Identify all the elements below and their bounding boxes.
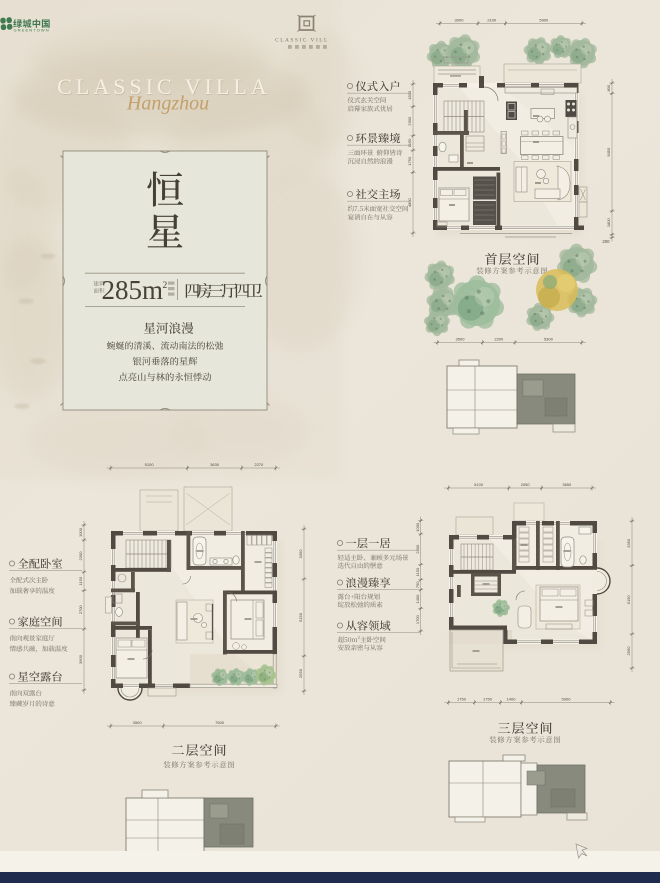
svg-text:CLASSIC VILL: CLASSIC VILL [275,38,329,44]
svg-text:2300: 2300 [415,544,420,554]
svg-text:3500: 3500 [456,337,466,342]
svg-text:3350: 3350 [626,538,631,548]
svg-text:3900: 3900 [78,654,83,664]
svg-text:1400: 1400 [415,594,420,604]
svg-text:4800: 4800 [407,197,412,207]
svg-text:5900: 5900 [539,18,549,23]
svg-text:1000: 1000 [415,522,420,532]
svg-text:1700: 1700 [415,614,420,624]
svg-text:5300: 5300 [544,337,554,342]
svg-text:285m: 285m [102,275,164,305]
svg-text:5150: 5150 [626,595,631,605]
svg-text:2550: 2550 [298,668,303,678]
svg-text:5900: 5900 [562,697,572,702]
svg-text:2050: 2050 [521,482,531,487]
svg-text:2550: 2550 [626,646,631,656]
svg-text:3500: 3500 [133,720,143,725]
svg-text:1750: 1750 [483,697,493,702]
svg-text:1750: 1750 [457,697,467,702]
svg-text:9050: 9050 [606,147,611,157]
svg-text:Hangzhou: Hangzhou [126,93,209,115]
svg-text:1800: 1800 [606,217,611,227]
svg-text:1800: 1800 [407,90,412,100]
svg-text:1150: 1150 [407,138,412,147]
svg-text:7500: 7500 [215,720,225,725]
svg-text:1150: 1150 [78,576,83,585]
svg-text:2300: 2300 [407,116,412,126]
svg-text:3650: 3650 [562,482,572,487]
svg-text:GREENTOWN: GREENTOWN [14,28,50,33]
svg-text:5150: 5150 [298,612,303,622]
svg-text:2300: 2300 [78,551,83,561]
svg-text:3000: 3000 [455,18,465,23]
svg-text:1400: 1400 [507,697,517,702]
svg-text:1750: 1750 [407,156,412,166]
svg-text:800: 800 [606,84,611,91]
svg-text:2200: 2200 [494,337,504,342]
svg-text:5100: 5100 [145,462,155,467]
svg-text:2700: 2700 [78,605,83,615]
svg-text:2100: 2100 [487,18,497,23]
svg-text:750: 750 [415,581,420,588]
svg-text:1150: 1150 [415,567,420,576]
svg-text:3350: 3350 [298,549,303,559]
svg-text:5100: 5100 [474,482,484,487]
svg-text:2: 2 [163,281,168,291]
svg-text:2270: 2270 [254,462,264,467]
svg-text:200: 200 [602,239,610,244]
svg-text:1000: 1000 [78,527,83,537]
svg-text:3630: 3630 [210,462,220,467]
